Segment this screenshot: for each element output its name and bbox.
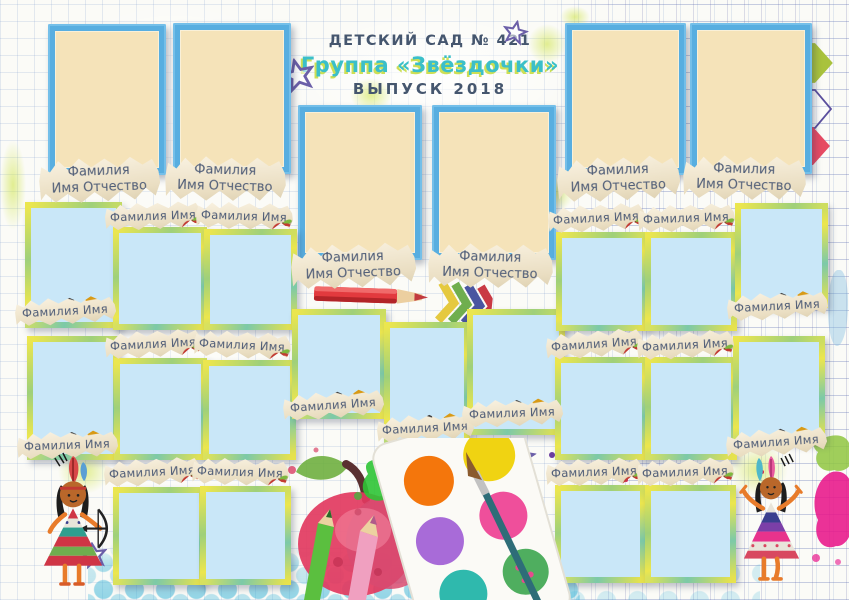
photo-placeholder-small[interactable] [114,358,207,460]
watercolor-splash [804,428,849,578]
indian-girl-doodle [732,452,810,588]
photo-placeholder-large[interactable] [432,105,556,260]
indian-girl-doodle [26,452,118,588]
photo-placeholder-small[interactable] [645,357,737,460]
photo-placeholder-small[interactable] [645,232,737,331]
fullname-label: Имя Отчество [570,177,666,197]
group-name: Группа «Звёздочки» [296,53,564,77]
photo-placeholder-large[interactable] [173,23,291,174]
star-icon [500,18,531,49]
photo-placeholder-large[interactable] [690,23,812,174]
photo-placeholder-large[interactable] [298,105,422,260]
lime-splotch [0,140,26,230]
paint-palette-decor [362,438,577,600]
photo-placeholder-small[interactable] [204,229,297,330]
graduation-year: ВЫПУСК 2018 [296,80,564,98]
photo-placeholder-small[interactable] [113,227,207,330]
photo-placeholder-large[interactable] [48,24,166,175]
collage-poster: ДЕТСКИЙ САД № 421 Группа «Звёздочки» ВЫП… [0,0,849,600]
fullname-label: Имя Отчество [51,178,147,198]
photo-placeholder-small[interactable] [735,203,828,308]
photo-placeholder-large[interactable] [565,23,686,175]
photo-placeholder-small[interactable] [556,232,648,331]
photo-placeholder-small[interactable] [645,485,736,583]
photo-placeholder-small[interactable] [113,487,205,585]
photo-placeholder-small[interactable] [733,336,825,443]
